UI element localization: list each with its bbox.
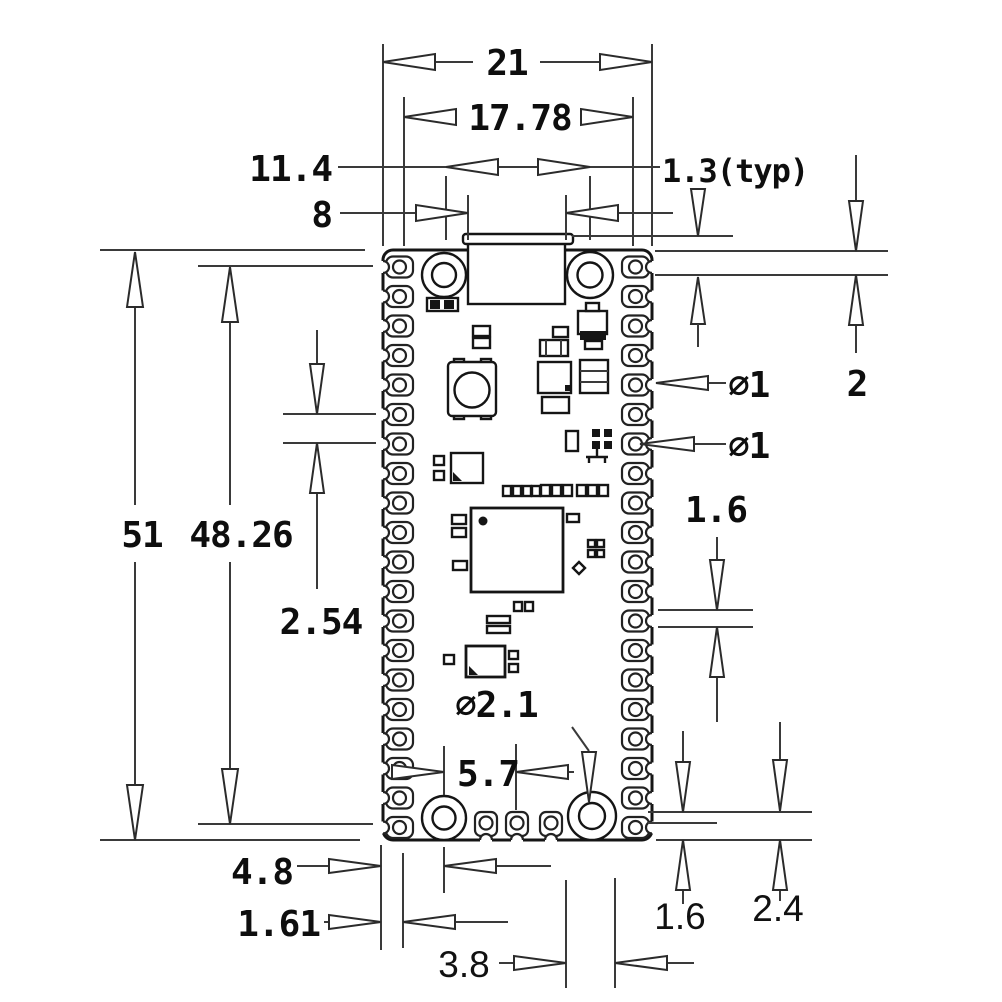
- passives-center-column: [538, 327, 571, 413]
- resistor-array: [580, 360, 608, 393]
- dim-pin-hole-dia-b: ∅1: [640, 426, 769, 467]
- bootsel-button: [448, 359, 496, 419]
- dim-pad-length-typ: 1.3(typ): [662, 152, 808, 347]
- dim-board-width: 21: [383, 43, 652, 84]
- mount-hole-bottom-right: [568, 792, 616, 840]
- dim-mount-hole-span: 11.4: [249, 149, 660, 190]
- pad-row-center: [503, 485, 608, 496]
- dim-bottom-pad-length: 1.6: [654, 731, 705, 937]
- usb-lip: [463, 234, 573, 244]
- dim-label-pin-column-span: 48.26: [189, 515, 292, 556]
- led-component: [427, 298, 458, 311]
- dim-label-pad-height-right: 1.6: [685, 490, 747, 531]
- dim-label-pad-length-typ: 1.3(typ): [662, 152, 808, 190]
- dim-label-board-length: 51: [121, 515, 162, 556]
- mount-hole-bottom-left: [422, 796, 466, 840]
- dim-pin-row-span: 17.78: [404, 98, 633, 139]
- capacitor-small-2: [473, 338, 490, 348]
- dim-bottom-edge-offset: 2.4: [752, 722, 803, 929]
- dim-board-length: 51: [121, 252, 162, 840]
- mechanical-drawing-canvas: 21 17.78 11.4 8 1.3(typ) 2 ∅1 ∅1: [0, 0, 1002, 1002]
- board: [381, 234, 654, 842]
- dim-label-pad-width: 1.61: [237, 904, 320, 945]
- dim-pin-column-span: 48.26: [189, 267, 292, 824]
- dim-top-edge-to-pin: 2: [847, 155, 868, 405]
- dim-label-pin-pitch: 2.54: [280, 602, 363, 643]
- dim-label-top-edge-to-pin: 2: [847, 364, 868, 405]
- dim-pin-hole-dia-a: ∅1: [656, 365, 769, 406]
- dim-label-pin-hole-dia-a: ∅1: [728, 365, 769, 406]
- dim-pin-pitch: 2.54: [280, 330, 363, 643]
- dim-label-hole-to-debug-pad: 5.7: [457, 754, 519, 795]
- dim-label-bottom-edge-offset: 2.4: [752, 888, 803, 929]
- dim-label-usb-width: 8: [311, 195, 332, 236]
- dim-label-edge-to-hole: 4.8: [231, 852, 293, 893]
- dim-label-debug-pad-span: 3.8: [438, 944, 489, 985]
- dim-label-mount-hole-dia: ∅2.1: [455, 685, 538, 726]
- debug-pads-bottom: [475, 812, 562, 842]
- usb-connector: [463, 234, 573, 304]
- dim-label-bottom-pad-length: 1.6: [654, 896, 705, 937]
- dim-label-board-width: 21: [486, 43, 527, 84]
- usb-body: [468, 242, 565, 304]
- mount-hole-top-right: [567, 252, 613, 298]
- capacitor-small-1: [473, 326, 490, 336]
- dim-usb-width: 8: [311, 195, 673, 236]
- board-dimension-drawing: 21 17.78 11.4 8 1.3(typ) 2 ∅1 ∅1: [0, 0, 1002, 1002]
- dim-label-pin-row-span: 17.78: [468, 98, 571, 139]
- mount-hole-top-left: [422, 253, 466, 297]
- dim-label-mount-hole-span: 11.4: [249, 149, 332, 190]
- dim-pad-width: 1.61: [237, 904, 508, 945]
- dim-label-pin-hole-dia-b: ∅1: [728, 426, 769, 467]
- dim-edge-to-hole: 4.8: [231, 852, 551, 893]
- dim-pad-height-right: 1.6: [685, 490, 747, 722]
- pin1-marker: [479, 517, 488, 526]
